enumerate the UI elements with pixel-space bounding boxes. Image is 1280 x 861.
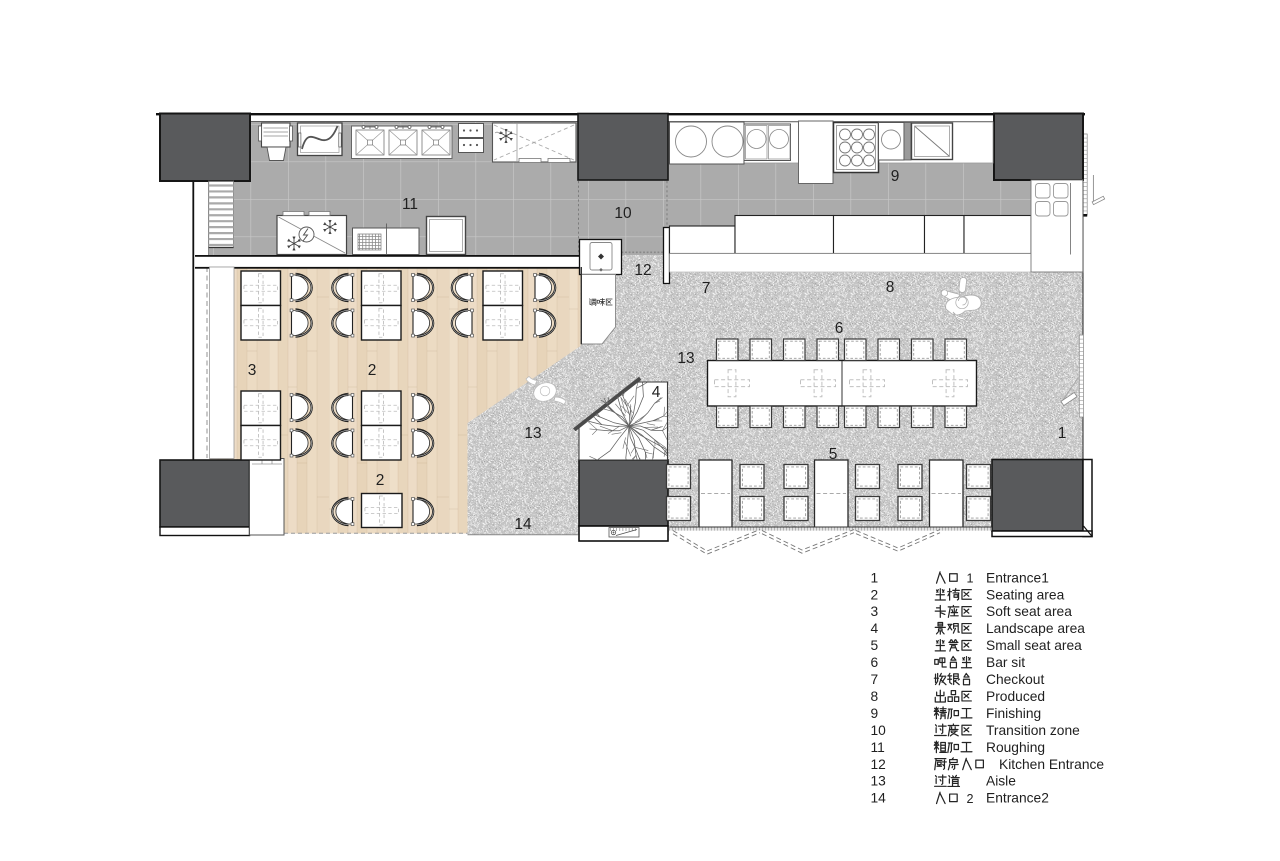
svg-text:2: 2 — [967, 792, 974, 806]
svg-text:5: 5 — [829, 446, 838, 463]
svg-text:2: 2 — [871, 587, 879, 602]
svg-text:12: 12 — [871, 757, 886, 772]
svg-text:14: 14 — [871, 791, 887, 806]
svg-text:Kitchen Entrance: Kitchen Entrance — [999, 757, 1104, 772]
svg-text:Soft seat area: Soft seat area — [986, 604, 1072, 619]
svg-text:7: 7 — [702, 280, 711, 297]
svg-text:Landscape area: Landscape area — [986, 621, 1085, 636]
svg-text:Entrance2: Entrance2 — [986, 791, 1049, 806]
svg-text:3: 3 — [871, 604, 879, 619]
svg-text:Checkout: Checkout — [986, 672, 1044, 687]
svg-text:9: 9 — [891, 168, 900, 185]
svg-text:Small seat area: Small seat area — [986, 638, 1082, 653]
svg-text:6: 6 — [835, 320, 844, 337]
svg-text:Produced: Produced — [986, 689, 1045, 704]
svg-text:2: 2 — [376, 472, 385, 489]
svg-text:1: 1 — [967, 572, 974, 586]
svg-text:13: 13 — [524, 425, 541, 442]
svg-text:Aisle: Aisle — [986, 774, 1016, 789]
svg-text:1: 1 — [1058, 425, 1067, 442]
svg-text:8: 8 — [871, 689, 879, 704]
svg-text:13: 13 — [871, 774, 887, 789]
svg-text:10: 10 — [614, 205, 632, 222]
svg-text:5: 5 — [871, 638, 879, 653]
svg-text:4: 4 — [871, 621, 879, 636]
svg-text:12: 12 — [634, 262, 651, 279]
svg-text:Entrance1: Entrance1 — [986, 570, 1049, 585]
svg-text:Roughing: Roughing — [986, 740, 1045, 755]
svg-text:8: 8 — [886, 279, 895, 296]
svg-text:6: 6 — [871, 655, 879, 670]
svg-text:11: 11 — [402, 196, 418, 213]
svg-text:1: 1 — [871, 570, 879, 585]
svg-text:4: 4 — [652, 384, 661, 401]
svg-text:Seating area: Seating area — [986, 587, 1065, 602]
svg-text:10: 10 — [871, 723, 887, 738]
svg-text:14: 14 — [514, 516, 532, 533]
svg-text:2: 2 — [368, 362, 377, 379]
svg-text:Transition zone: Transition zone — [986, 723, 1080, 738]
svg-text:9: 9 — [871, 706, 879, 721]
svg-text:Bar sit: Bar sit — [986, 655, 1025, 670]
svg-text:3: 3 — [248, 362, 257, 379]
svg-text:13: 13 — [677, 350, 694, 367]
svg-text:Finishing: Finishing — [986, 706, 1041, 721]
svg-text:11: 11 — [871, 740, 885, 755]
svg-text:7: 7 — [871, 672, 879, 687]
